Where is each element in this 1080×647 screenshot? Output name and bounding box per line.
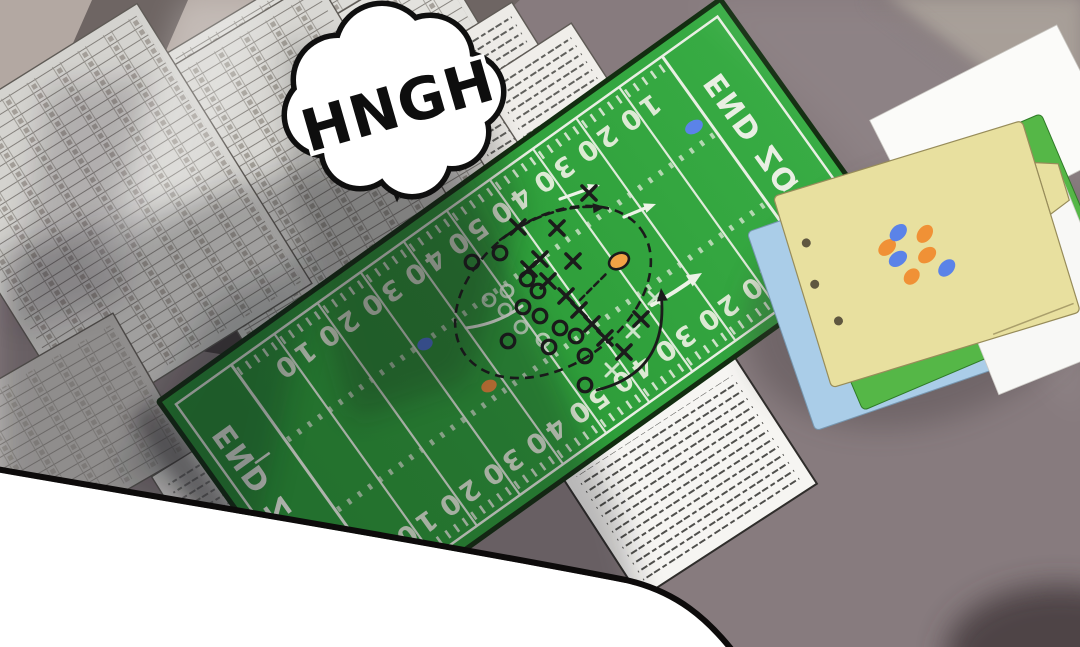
comic-panel: END ZONE END ZONE 10 20 30 40 50 40 30 2…: [0, 0, 1080, 647]
scene: END ZONE END ZONE 10 20 30 40 50 40 30 2…: [0, 0, 1080, 647]
